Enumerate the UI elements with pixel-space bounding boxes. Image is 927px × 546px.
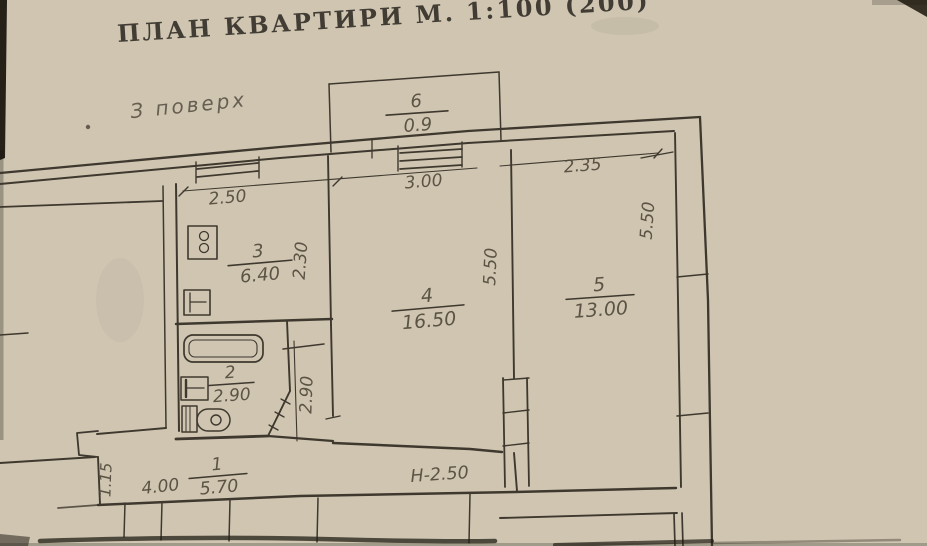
scanned-floor-plan-page: ПЛАН КВАРТИРИ М. 1:100 (200) З поверх 6 … <box>0 0 927 546</box>
room-number: 3 <box>251 241 264 263</box>
room-number: 6 <box>410 91 423 113</box>
ceiling-height-note: Н-2.50 <box>410 463 470 487</box>
neighbor-walls <box>0 186 166 463</box>
washbasin-icon <box>181 377 208 400</box>
toilet-icon <box>182 406 230 432</box>
dim-label-kitchen-width: 2.50 <box>208 186 247 209</box>
dim-label-hall-length: 4.00 <box>141 475 181 499</box>
room-number: 1 <box>211 455 224 476</box>
dim-label-living-depth: 5.50 <box>480 247 502 286</box>
floor-note: З поверх <box>129 87 248 123</box>
dim-label-bath-depth: 2.90 <box>296 376 317 415</box>
plan-title: ПЛАН КВАРТИРИ М. 1:100 (200) <box>116 0 651 48</box>
room-number: 2 <box>224 363 236 384</box>
room-area: 5.70 <box>199 476 240 499</box>
dim-label-kitchen-depth: 2.30 <box>290 241 313 280</box>
dim-label-entry-width: 1.15 <box>96 462 115 497</box>
floor-plan-drawing: ПЛАН КВАРТИРИ М. 1:100 (200) З поверх 6 … <box>0 0 927 546</box>
room-label-5: 5 13.00 <box>564 272 635 324</box>
room-area: 2.90 <box>212 385 251 408</box>
pencil-dot-mark <box>86 125 90 129</box>
room-label-1: 1 5.70 <box>187 453 249 501</box>
room-number: 5 <box>592 274 606 297</box>
kitchen-sink-icon <box>184 290 210 315</box>
room-area: 6.40 <box>239 263 281 287</box>
stove-icon <box>188 226 217 259</box>
room-number: 4 <box>420 285 434 308</box>
room-area: 16.50 <box>401 308 457 335</box>
room-label-2: 2 2.90 <box>208 361 256 407</box>
room-label-3: 3 6.40 <box>226 238 294 288</box>
dim-label-bedroom-width: 2.35 <box>563 155 602 178</box>
dim-label-bedroom-depth: 5.50 <box>637 201 660 240</box>
room-label-6: 6 0.9 <box>385 89 450 138</box>
room-area: 13.00 <box>573 297 629 323</box>
room-label-4: 4 16.50 <box>390 282 466 335</box>
room-area: 0.9 <box>403 114 433 137</box>
dim-label-living-width: 3.00 <box>404 171 443 194</box>
bathtub-icon <box>184 335 263 362</box>
